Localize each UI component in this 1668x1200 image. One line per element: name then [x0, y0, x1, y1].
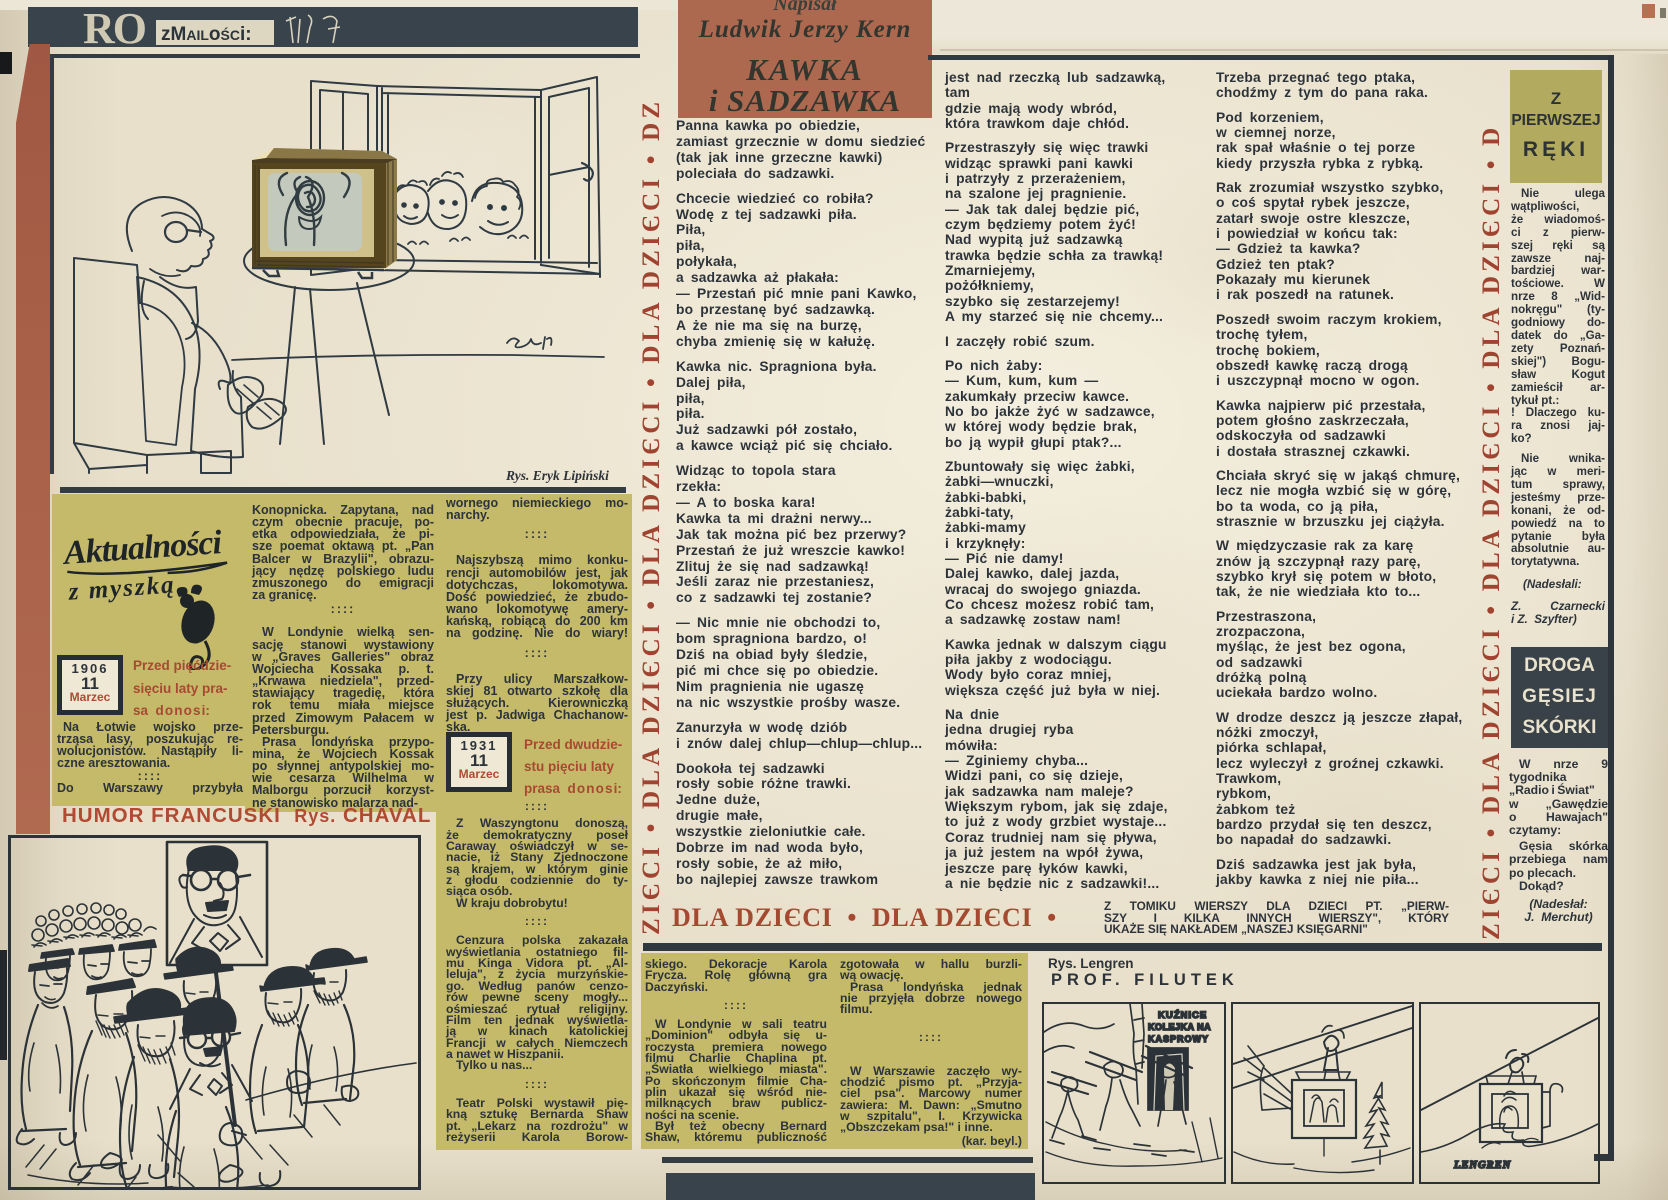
svg-text:KOLEJKA NA: KOLEJKA NA [1148, 1022, 1211, 1032]
svg-text:KUŹNICE: KUŹNICE [1158, 1010, 1207, 1021]
svg-text:Aktualności: Aktualności [61, 524, 224, 572]
svg-text:zMAILoŚCi:: zMAILoŚCi: [161, 24, 252, 45]
svg-text:RO: RO [83, 7, 146, 47]
svg-text:KASPROWY: KASPROWY [1148, 1034, 1209, 1044]
svg-text:LENGREN: LENGREN [1453, 1160, 1511, 1171]
svg-text:z myszką: z myszką [67, 571, 177, 605]
